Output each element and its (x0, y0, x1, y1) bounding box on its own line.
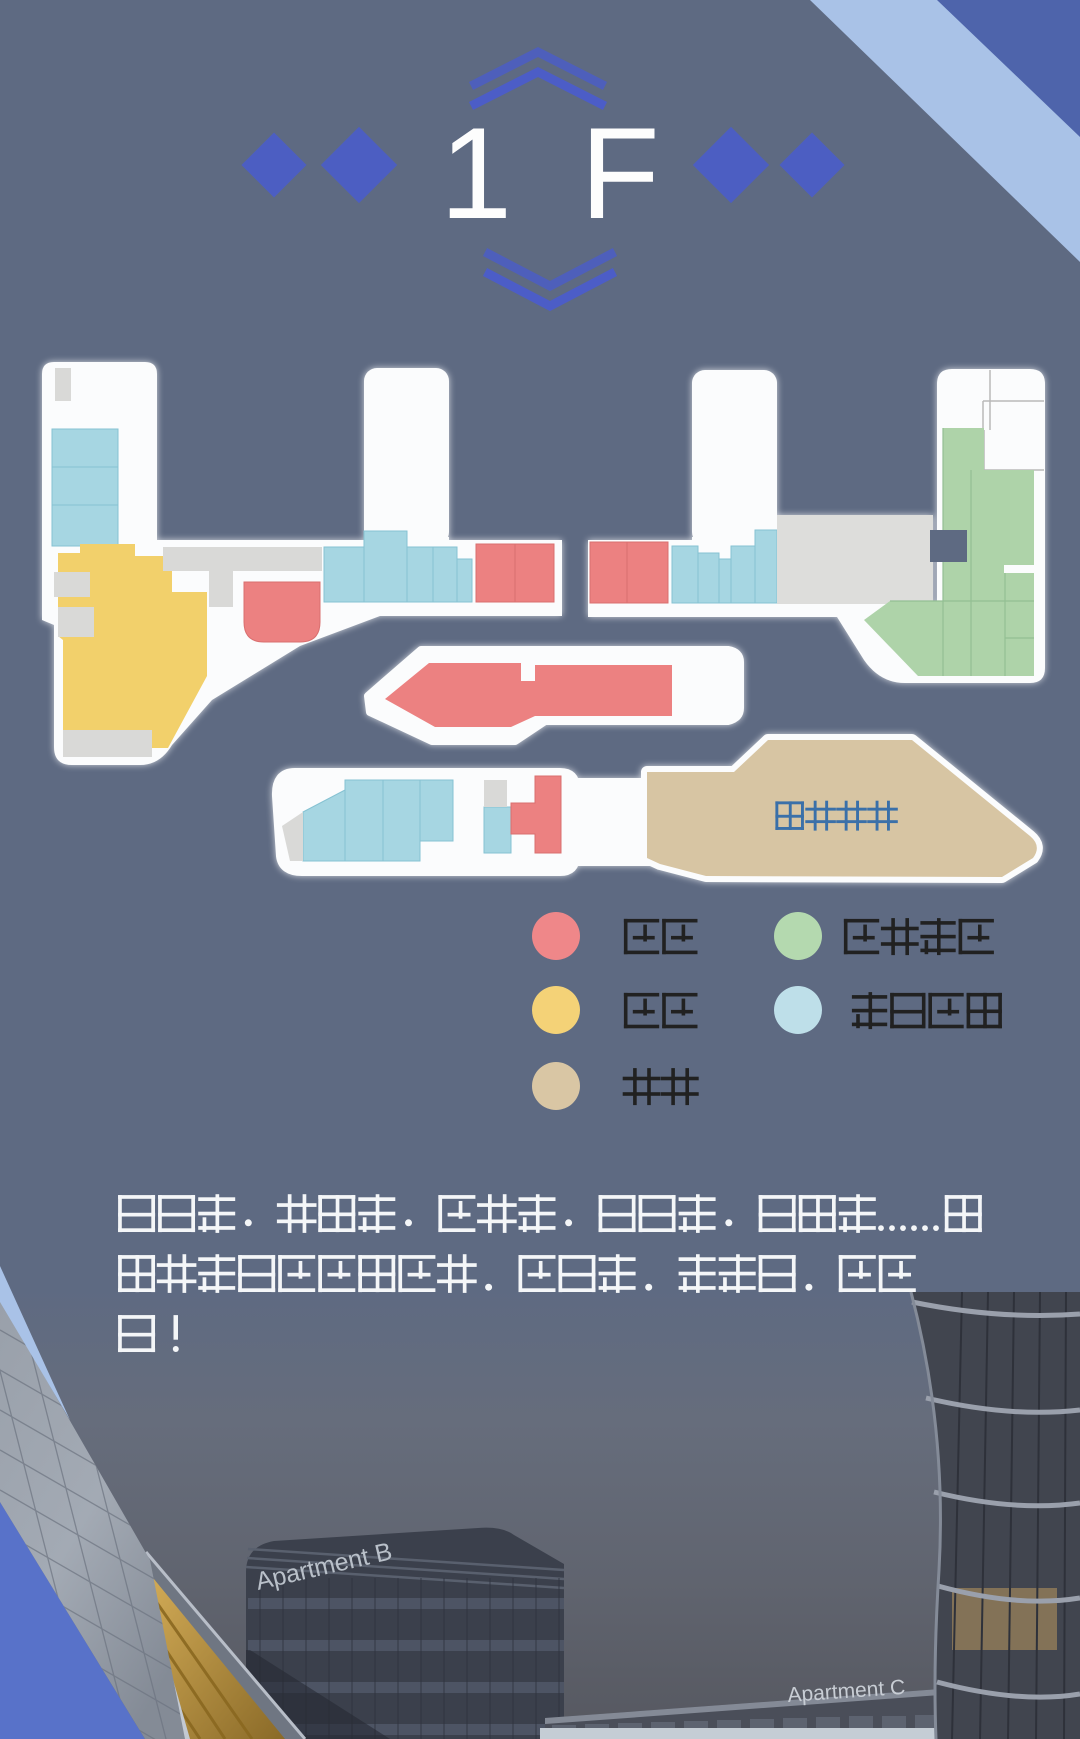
svg-text:1: 1 (440, 100, 512, 246)
svg-text:F: F (580, 100, 659, 246)
